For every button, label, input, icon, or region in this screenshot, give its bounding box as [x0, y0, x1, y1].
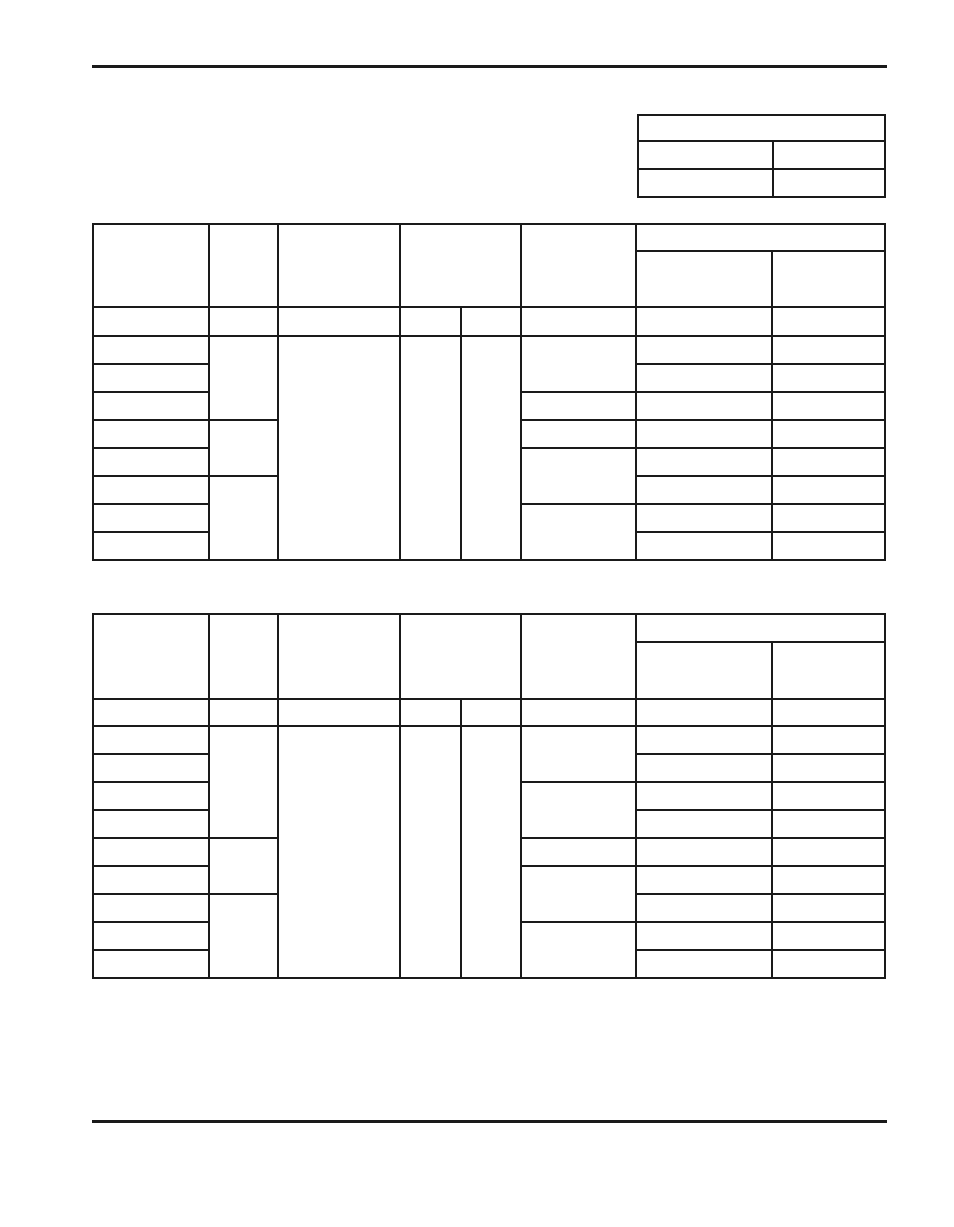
bottom-rule — [92, 1120, 887, 1123]
table-cell — [210, 700, 277, 725]
table-cell — [522, 727, 635, 781]
table-cell — [773, 755, 884, 781]
table-cell — [94, 755, 208, 781]
table-cell — [637, 421, 771, 447]
table-cell — [522, 700, 635, 725]
table-cell — [637, 615, 884, 641]
table-cell — [637, 783, 771, 809]
table-cell — [462, 727, 520, 977]
table-cell — [94, 337, 208, 363]
table-cell — [94, 505, 208, 531]
table-cell — [279, 308, 399, 335]
table-cell — [637, 867, 771, 893]
table-cell — [94, 867, 208, 893]
table-cell — [773, 839, 884, 865]
table-cell — [637, 365, 771, 391]
table-cell — [773, 337, 884, 363]
table-cell — [773, 449, 884, 475]
table-cell — [637, 252, 771, 306]
table-cell — [210, 308, 277, 335]
table-cell — [773, 477, 884, 503]
table-cell — [773, 308, 884, 335]
table-cell — [94, 923, 208, 949]
table-cell — [637, 895, 771, 921]
table-cell — [637, 308, 771, 335]
table-cell — [522, 308, 635, 335]
table-cell — [401, 727, 460, 977]
table-cell — [279, 225, 399, 306]
table-cell — [279, 700, 399, 725]
table-cell — [773, 252, 884, 306]
table-cell — [210, 337, 277, 419]
table-cell — [637, 951, 771, 977]
table-cell — [210, 225, 277, 306]
table-cell — [210, 421, 277, 475]
table-cell — [773, 867, 884, 893]
table-cell — [639, 116, 884, 140]
table-cell — [279, 727, 399, 977]
table-cell — [279, 337, 399, 559]
header-info-table — [637, 114, 886, 198]
table-cell — [94, 700, 208, 725]
table-cell — [401, 225, 520, 306]
table-cell — [94, 365, 208, 391]
table-cell — [637, 449, 771, 475]
table-cell — [639, 142, 772, 168]
table-cell — [522, 505, 635, 559]
table-cell — [522, 393, 635, 419]
table-cell — [94, 783, 208, 809]
table-cell — [637, 393, 771, 419]
table-cell — [637, 477, 771, 503]
table-cell — [210, 477, 277, 559]
table-cell — [637, 727, 771, 753]
table-cell — [773, 505, 884, 531]
table-cell — [637, 923, 771, 949]
table-cell — [522, 337, 635, 391]
table-cell — [637, 700, 771, 725]
table-cell — [773, 421, 884, 447]
table-cell — [210, 839, 277, 893]
table-cell — [210, 895, 277, 977]
table-cell — [522, 839, 635, 865]
table-cell — [773, 393, 884, 419]
upper-table — [92, 223, 886, 561]
table-cell — [94, 225, 208, 306]
table-cell — [637, 533, 771, 559]
table-cell — [773, 727, 884, 753]
table-cell — [94, 421, 208, 447]
table-cell — [401, 308, 460, 335]
table-cell — [462, 308, 520, 335]
table-cell — [462, 700, 520, 725]
table-cell — [94, 533, 208, 559]
table-cell — [522, 867, 635, 921]
table-cell — [94, 951, 208, 977]
table-cell — [637, 505, 771, 531]
table-cell — [94, 895, 208, 921]
table-cell — [773, 783, 884, 809]
table-cell — [94, 811, 208, 837]
table-cell — [279, 615, 399, 698]
document-page — [0, 0, 954, 1227]
table-cell — [773, 533, 884, 559]
table-cell — [94, 393, 208, 419]
table-cell — [774, 170, 884, 196]
top-rule — [92, 65, 887, 68]
table-cell — [637, 225, 884, 250]
table-cell — [637, 337, 771, 363]
lower-table — [92, 613, 886, 979]
table-cell — [522, 225, 635, 306]
table-cell — [210, 727, 277, 837]
table-cell — [773, 700, 884, 725]
table-cell — [401, 700, 460, 725]
table-cell — [522, 449, 635, 503]
table-cell — [522, 923, 635, 977]
table-cell — [94, 477, 208, 503]
table-cell — [637, 755, 771, 781]
table-cell — [522, 783, 635, 837]
table-cell — [210, 615, 277, 698]
table-cell — [773, 951, 884, 977]
table-cell — [94, 727, 208, 753]
table-cell — [401, 337, 460, 559]
table-cell — [774, 142, 884, 168]
table-cell — [94, 615, 208, 698]
table-cell — [94, 839, 208, 865]
table-cell — [773, 923, 884, 949]
table-cell — [773, 895, 884, 921]
table-cell — [637, 839, 771, 865]
table-cell — [773, 643, 884, 698]
table-cell — [401, 615, 520, 698]
table-cell — [773, 811, 884, 837]
table-cell — [773, 365, 884, 391]
table-cell — [462, 337, 520, 559]
table-cell — [639, 170, 772, 196]
table-cell — [522, 421, 635, 447]
table-cell — [637, 643, 771, 698]
table-cell — [94, 449, 208, 475]
table-cell — [94, 308, 208, 335]
table-cell — [522, 615, 635, 698]
table-cell — [637, 811, 771, 837]
